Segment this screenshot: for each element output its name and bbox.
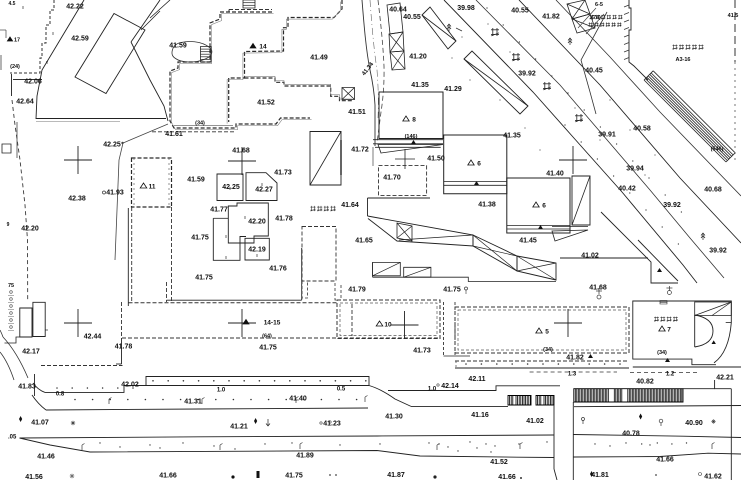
- svg-text:41.79: 41.79: [348, 287, 366, 294]
- svg-text:42.06: 42.06: [24, 79, 42, 86]
- svg-text:42.59: 42.59: [71, 36, 89, 43]
- svg-text:42.20: 42.20: [21, 226, 39, 233]
- svg-text:6-5: 6-5: [595, 2, 603, 8]
- svg-text:(146): (146): [405, 134, 418, 140]
- svg-text:41.02: 41.02: [581, 253, 599, 260]
- svg-text:II: II: [225, 234, 228, 239]
- svg-text:41.87: 41.87: [387, 472, 405, 479]
- svg-text:41.30: 41.30: [385, 414, 403, 421]
- svg-text:41.75: 41.75: [285, 473, 303, 480]
- svg-text:42.25: 42.25: [103, 142, 121, 149]
- svg-text:42.14: 42.14: [441, 383, 459, 390]
- svg-text:(34): (34): [195, 121, 205, 127]
- svg-text:41.75: 41.75: [259, 345, 277, 352]
- svg-text:41.50: 41.50: [427, 156, 445, 163]
- svg-text:1.2: 1.2: [666, 372, 675, 378]
- svg-text:41.75: 41.75: [195, 275, 213, 282]
- svg-text:39.92: 39.92: [709, 248, 727, 255]
- svg-text:40.55: 40.55: [403, 14, 421, 21]
- svg-text:41.66: 41.66: [498, 474, 516, 480]
- svg-text:41.31: 41.31: [184, 399, 202, 406]
- svg-text:.05: .05: [8, 435, 17, 441]
- svg-text:(34): (34): [543, 347, 553, 353]
- svg-text:41.73: 41.73: [274, 170, 292, 177]
- svg-text:0.5: 0.5: [337, 387, 346, 393]
- svg-text:40.78: 40.78: [622, 431, 640, 438]
- svg-text:41.64: 41.64: [341, 202, 359, 209]
- svg-text:41.82: 41.82: [566, 355, 584, 362]
- svg-text:42.27: 42.27: [255, 187, 273, 194]
- svg-text:40.58: 40.58: [633, 126, 651, 133]
- svg-text:41.52: 41.52: [490, 459, 508, 466]
- svg-text:II: II: [244, 215, 247, 220]
- svg-text:41.82: 41.82: [542, 14, 560, 21]
- svg-text:14-15: 14-15: [264, 320, 281, 327]
- svg-text:42.02: 42.02: [121, 382, 139, 389]
- svg-text:9: 9: [7, 222, 10, 228]
- svg-text:39.92: 39.92: [518, 71, 536, 78]
- svg-text:11: 11: [149, 184, 156, 191]
- svg-text:41.73: 41.73: [413, 348, 431, 355]
- svg-text:41.75: 41.75: [191, 235, 209, 242]
- svg-text:41.75: 41.75: [443, 287, 461, 294]
- svg-text:41.38: 41.38: [478, 202, 496, 209]
- svg-text:II: II: [225, 255, 228, 260]
- svg-text:40.90: 40.90: [685, 420, 703, 427]
- svg-text:41.93: 41.93: [106, 190, 124, 197]
- svg-text:40.55: 40.55: [511, 8, 529, 15]
- svg-text:10: 10: [384, 322, 392, 329]
- svg-text:41.02: 41.02: [526, 418, 544, 425]
- svg-text:6: 6: [542, 203, 546, 210]
- svg-text:(34): (34): [657, 350, 667, 356]
- svg-text:41.61: 41.61: [165, 131, 183, 138]
- svg-text:5: 5: [545, 329, 549, 336]
- svg-text:41.65: 41.65: [355, 238, 373, 245]
- svg-text:42.25: 42.25: [222, 184, 240, 191]
- svg-text:42.38: 42.38: [68, 196, 86, 203]
- svg-text:41.40: 41.40: [289, 396, 307, 403]
- svg-text:41.68: 41.68: [232, 148, 250, 155]
- svg-text:41.66: 41.66: [159, 473, 177, 480]
- svg-text:40.68: 40.68: [704, 187, 722, 194]
- svg-text:8: 8: [412, 117, 416, 124]
- svg-text:42.17: 42.17: [22, 349, 40, 356]
- svg-text:41.66: 41.66: [656, 457, 674, 464]
- svg-text:39.94: 39.94: [626, 166, 644, 173]
- svg-text:41.59: 41.59: [187, 177, 205, 184]
- svg-text:II: II: [22, 5, 25, 10]
- svg-text:41.68: 41.68: [589, 285, 607, 292]
- svg-text:A3-16: A3-16: [676, 57, 691, 63]
- svg-text:41.77: 41.77: [210, 207, 228, 214]
- svg-text:41.16: 41.16: [471, 412, 489, 419]
- svg-text:1.0: 1.0: [428, 387, 437, 393]
- svg-text:41.35: 41.35: [503, 133, 521, 140]
- svg-text:41.56: 41.56: [25, 474, 43, 480]
- svg-text:41.51: 41.51: [348, 109, 366, 116]
- svg-text:41.45: 41.45: [519, 238, 537, 245]
- svg-text:(24): (24): [10, 64, 20, 70]
- svg-text:41.59: 41.59: [169, 43, 187, 50]
- svg-text:42.44: 42.44: [84, 334, 102, 341]
- svg-text:41.52: 41.52: [257, 100, 275, 107]
- svg-text:41.5: 41.5: [728, 13, 739, 19]
- svg-text:39.91: 39.91: [598, 132, 616, 139]
- svg-text:39.98: 39.98: [457, 5, 475, 12]
- svg-text:41.49: 41.49: [310, 55, 328, 62]
- svg-text:42.11: 42.11: [468, 376, 485, 383]
- svg-text:4.5: 4.5: [9, 1, 16, 7]
- svg-text:0.8: 0.8: [56, 392, 65, 398]
- svg-text:41.76: 41.76: [269, 266, 287, 273]
- svg-text:41.40: 41.40: [546, 171, 564, 178]
- svg-text:41.78: 41.78: [115, 344, 133, 351]
- svg-text:17: 17: [14, 38, 20, 44]
- svg-text:(64): (64): [262, 334, 272, 340]
- svg-text:42.19: 42.19: [248, 247, 266, 254]
- svg-text:41.72: 41.72: [351, 147, 369, 154]
- svg-text:40.45: 40.45: [585, 68, 603, 75]
- svg-text:40.42: 40.42: [618, 186, 636, 193]
- svg-text:41.62: 41.62: [704, 474, 722, 480]
- svg-text:40.82: 40.82: [636, 379, 654, 386]
- svg-text:42.21: 42.21: [716, 375, 734, 382]
- svg-text:41.35: 41.35: [411, 82, 429, 89]
- svg-text:41.78: 41.78: [275, 216, 293, 223]
- svg-text:II: II: [52, 31, 55, 36]
- svg-text:1.0: 1.0: [217, 388, 226, 394]
- svg-text:41.83: 41.83: [18, 384, 36, 391]
- svg-text:75: 75: [8, 283, 14, 289]
- svg-text:41.23: 41.23: [323, 421, 341, 428]
- svg-text:6: 6: [477, 161, 481, 168]
- svg-text:II: II: [256, 253, 259, 258]
- svg-text:42.20: 42.20: [248, 219, 266, 226]
- svg-text:41.81: 41.81: [591, 472, 609, 479]
- svg-text:41.46: 41.46: [37, 454, 55, 461]
- svg-text:41.20: 41.20: [409, 54, 427, 61]
- svg-text:39.92: 39.92: [663, 202, 681, 209]
- svg-text:41.89: 41.89: [296, 453, 314, 460]
- svg-text:42.64: 42.64: [16, 99, 34, 106]
- svg-text:41.29: 41.29: [444, 86, 462, 93]
- svg-text:41.21: 41.21: [230, 424, 248, 431]
- svg-text:42.22: 42.22: [66, 4, 84, 11]
- svg-text:14: 14: [259, 44, 267, 51]
- svg-text:7: 7: [667, 327, 671, 334]
- svg-text:41.70: 41.70: [383, 175, 401, 182]
- svg-text:1.3: 1.3: [568, 372, 577, 378]
- svg-text:41.07: 41.07: [31, 420, 49, 427]
- svg-text:40.64: 40.64: [389, 7, 407, 14]
- svg-text:(546): (546): [711, 147, 724, 153]
